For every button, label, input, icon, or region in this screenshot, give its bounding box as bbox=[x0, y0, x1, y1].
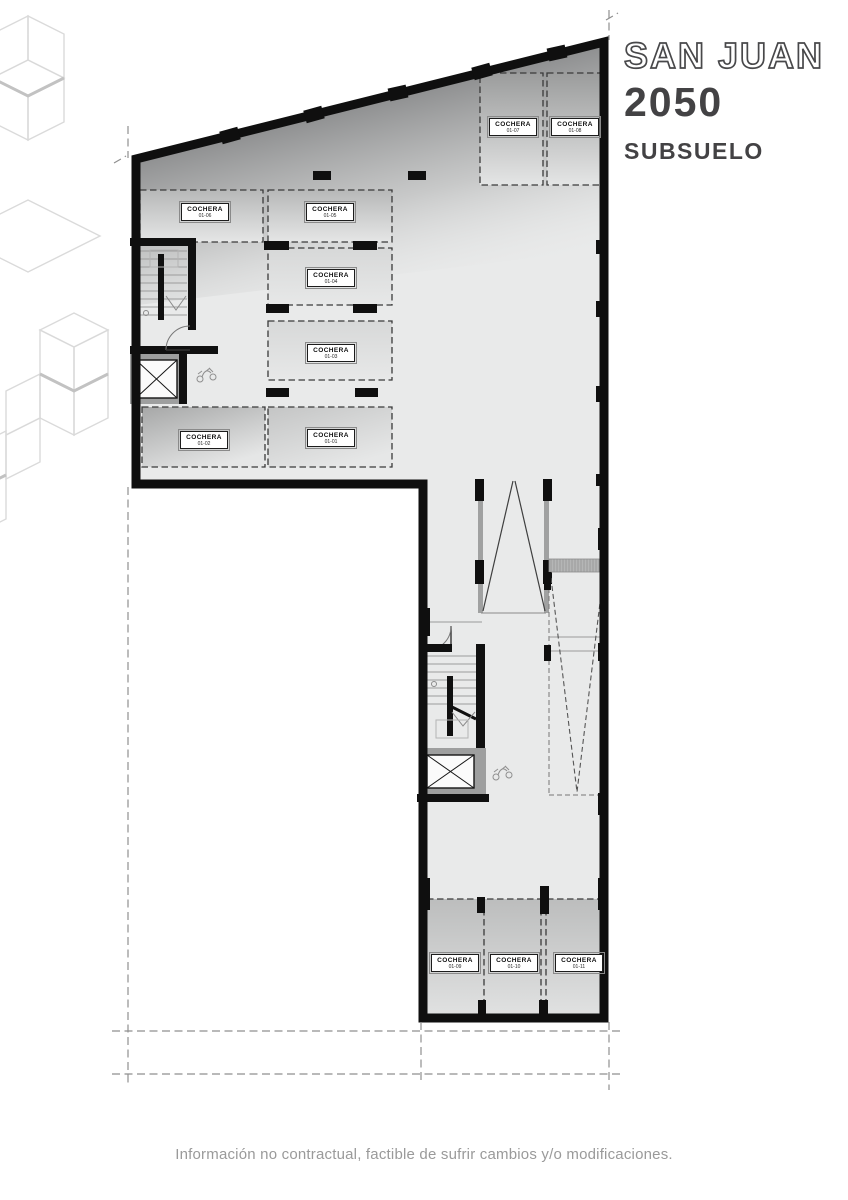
cochera-01-01-label: COCHERA 01-01 bbox=[307, 429, 355, 447]
project-number: 2050 bbox=[624, 82, 824, 123]
cochera-01-10-label: COCHERA 01-10 bbox=[490, 954, 538, 972]
floor-plan-drawing bbox=[0, 0, 848, 1200]
elevator-lower bbox=[417, 748, 489, 802]
ramp-grating bbox=[549, 559, 602, 572]
cochera-01-08-label: COCHERA 01-08 bbox=[551, 118, 599, 136]
cochera-01-02-label: COCHERA 01-02 bbox=[180, 431, 228, 449]
level-name: SUBSUELO bbox=[624, 140, 824, 163]
cochera-01-09-label: COCHERA 01-09 bbox=[431, 954, 479, 972]
cochera-01-04-label: COCHERA 01-04 bbox=[307, 269, 355, 287]
floor-plan-poster: SAN JUAN 2050 SUBSUELO COCHERA 01-01 COC… bbox=[0, 0, 848, 1200]
cochera-01-03-label: COCHERA 01-03 bbox=[307, 344, 355, 362]
cochera-01-06-label: COCHERA 01-06 bbox=[181, 203, 229, 221]
title-block: SAN JUAN 2050 SUBSUELO bbox=[624, 38, 824, 163]
disclaimer-text: Información no contractual, factible de … bbox=[0, 1146, 848, 1163]
project-name: SAN JUAN bbox=[624, 38, 824, 74]
decorative-isometric-art bbox=[0, 16, 108, 536]
cochera-01-11-label: COCHERA 01-11 bbox=[555, 954, 603, 972]
cochera-01-07-label: COCHERA 01-07 bbox=[489, 118, 537, 136]
cochera-01-05-label: COCHERA 01-05 bbox=[306, 203, 354, 221]
